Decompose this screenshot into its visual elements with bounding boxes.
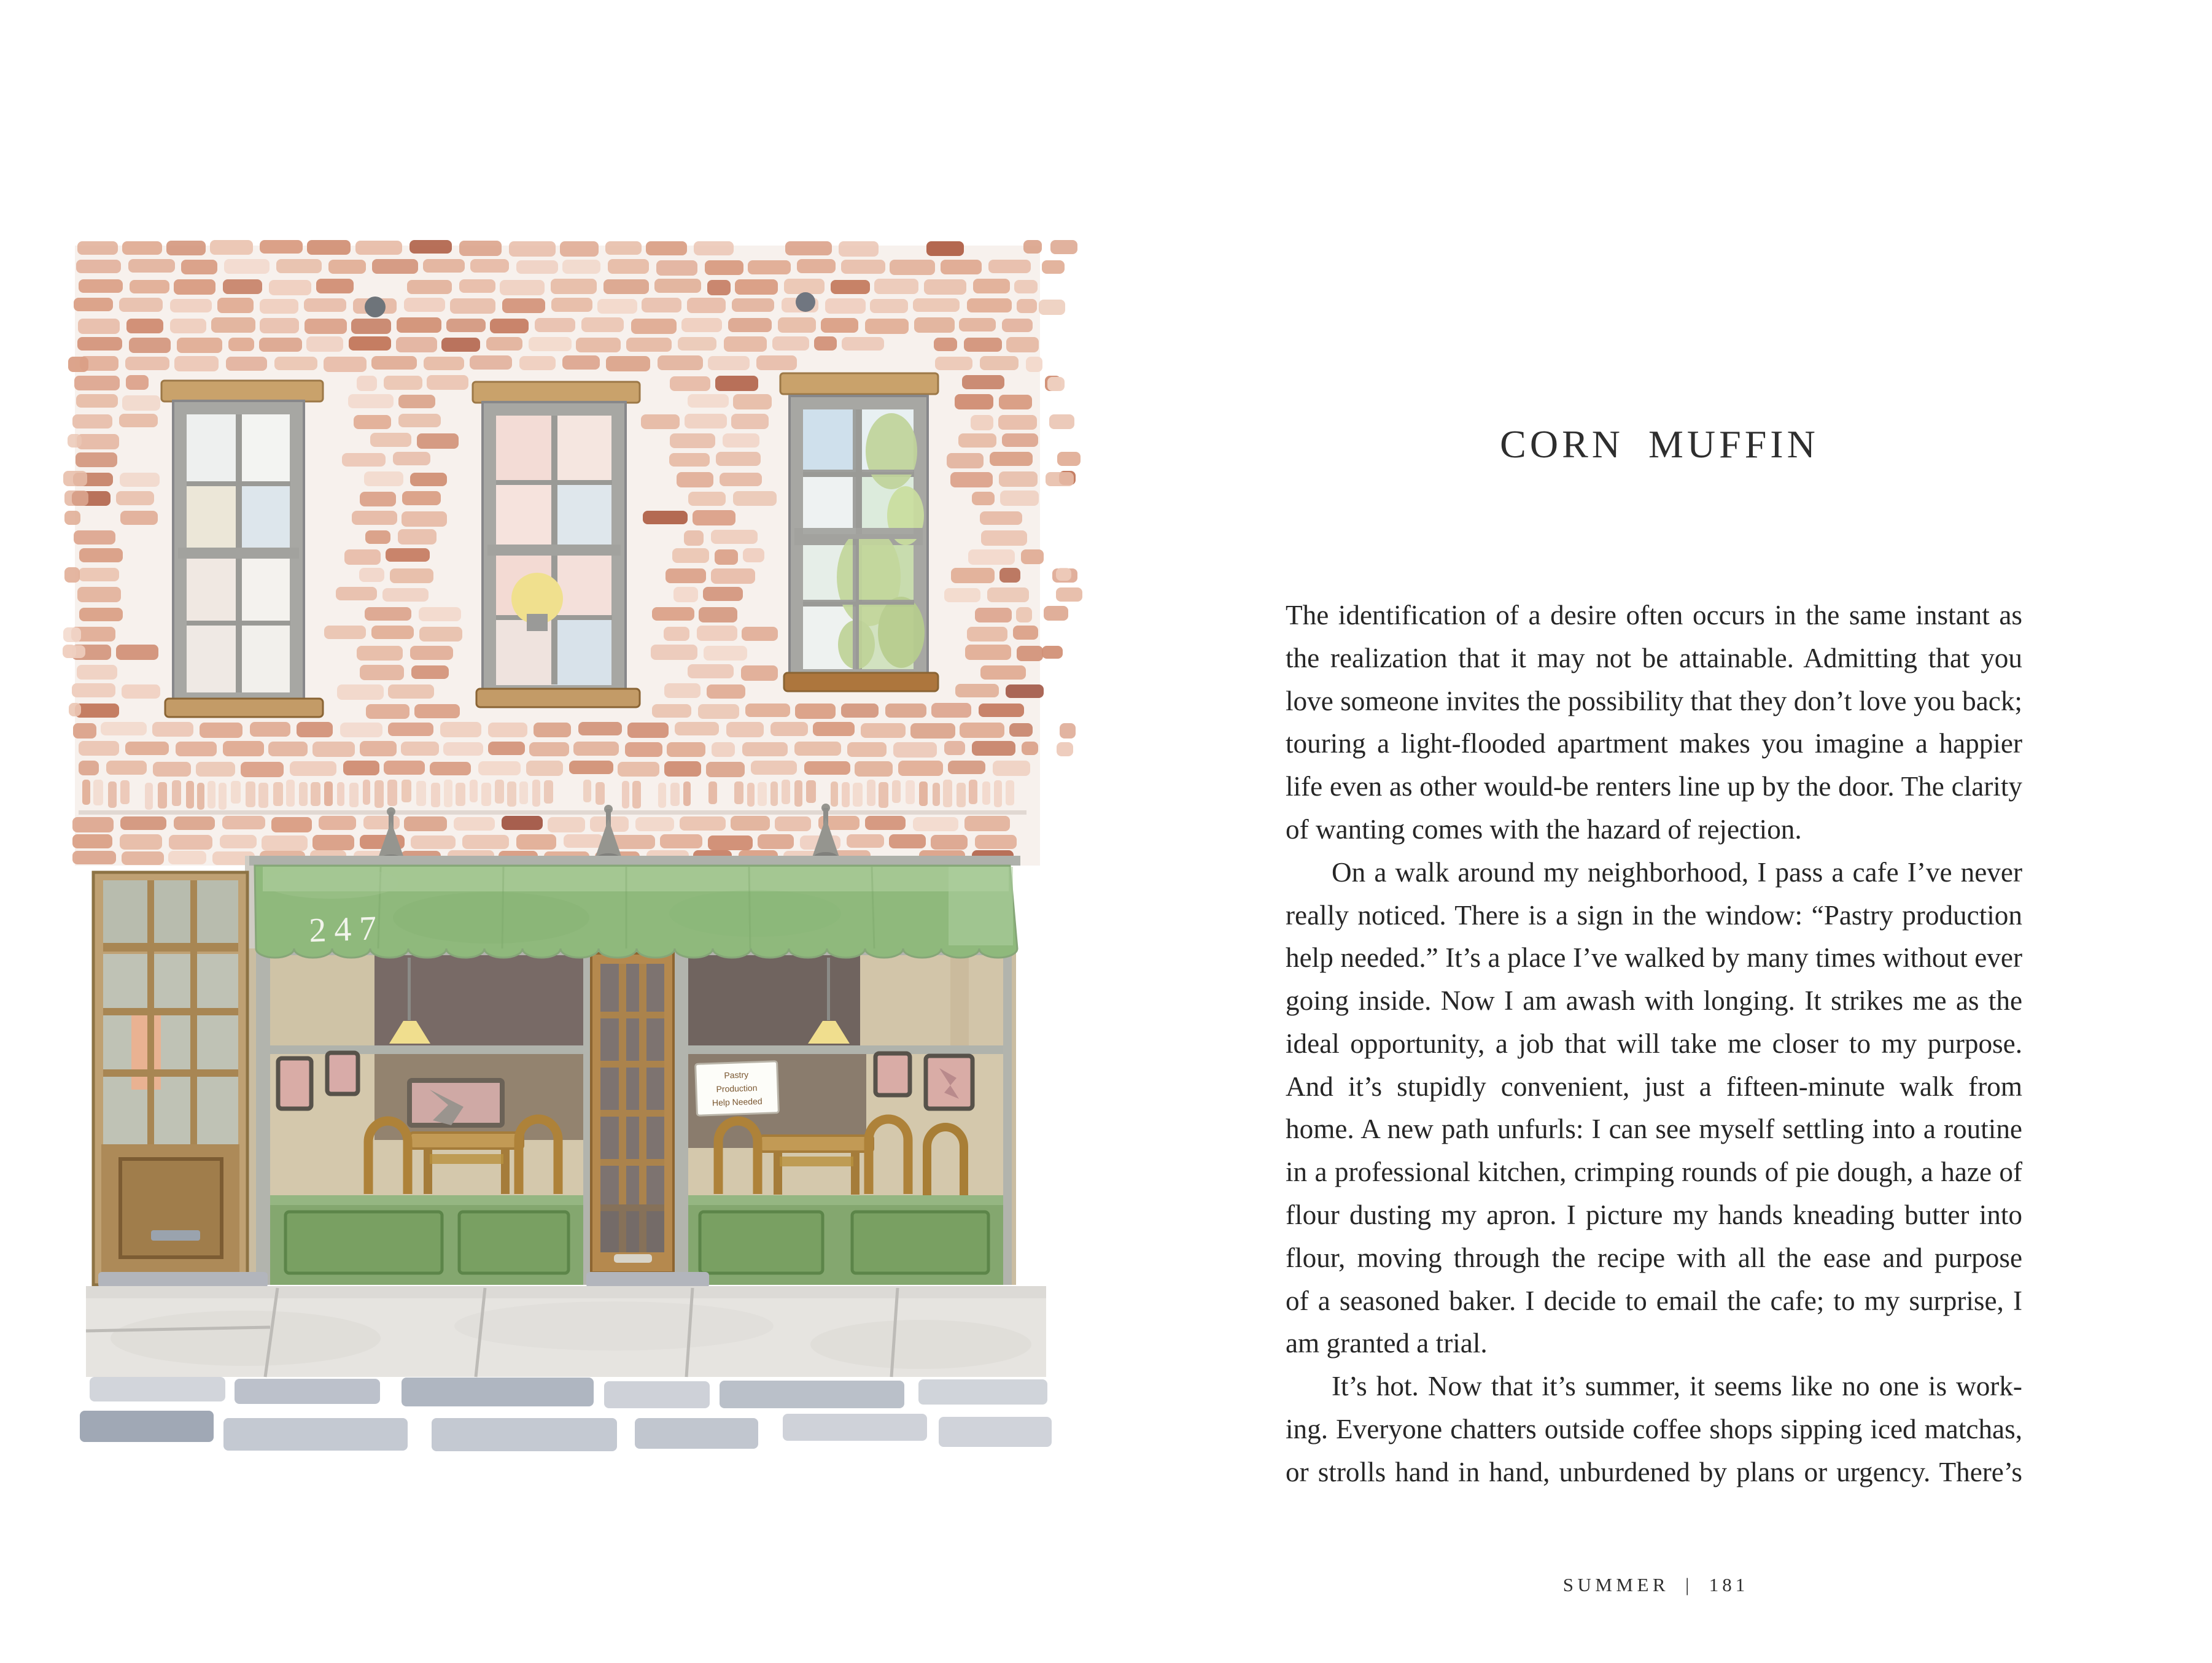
svg-text:Help Needed: Help Needed <box>712 1096 763 1108</box>
svg-text:Production: Production <box>716 1083 757 1094</box>
svg-text:247: 247 <box>308 909 385 950</box>
svg-text:Pastry: Pastry <box>724 1069 748 1080</box>
